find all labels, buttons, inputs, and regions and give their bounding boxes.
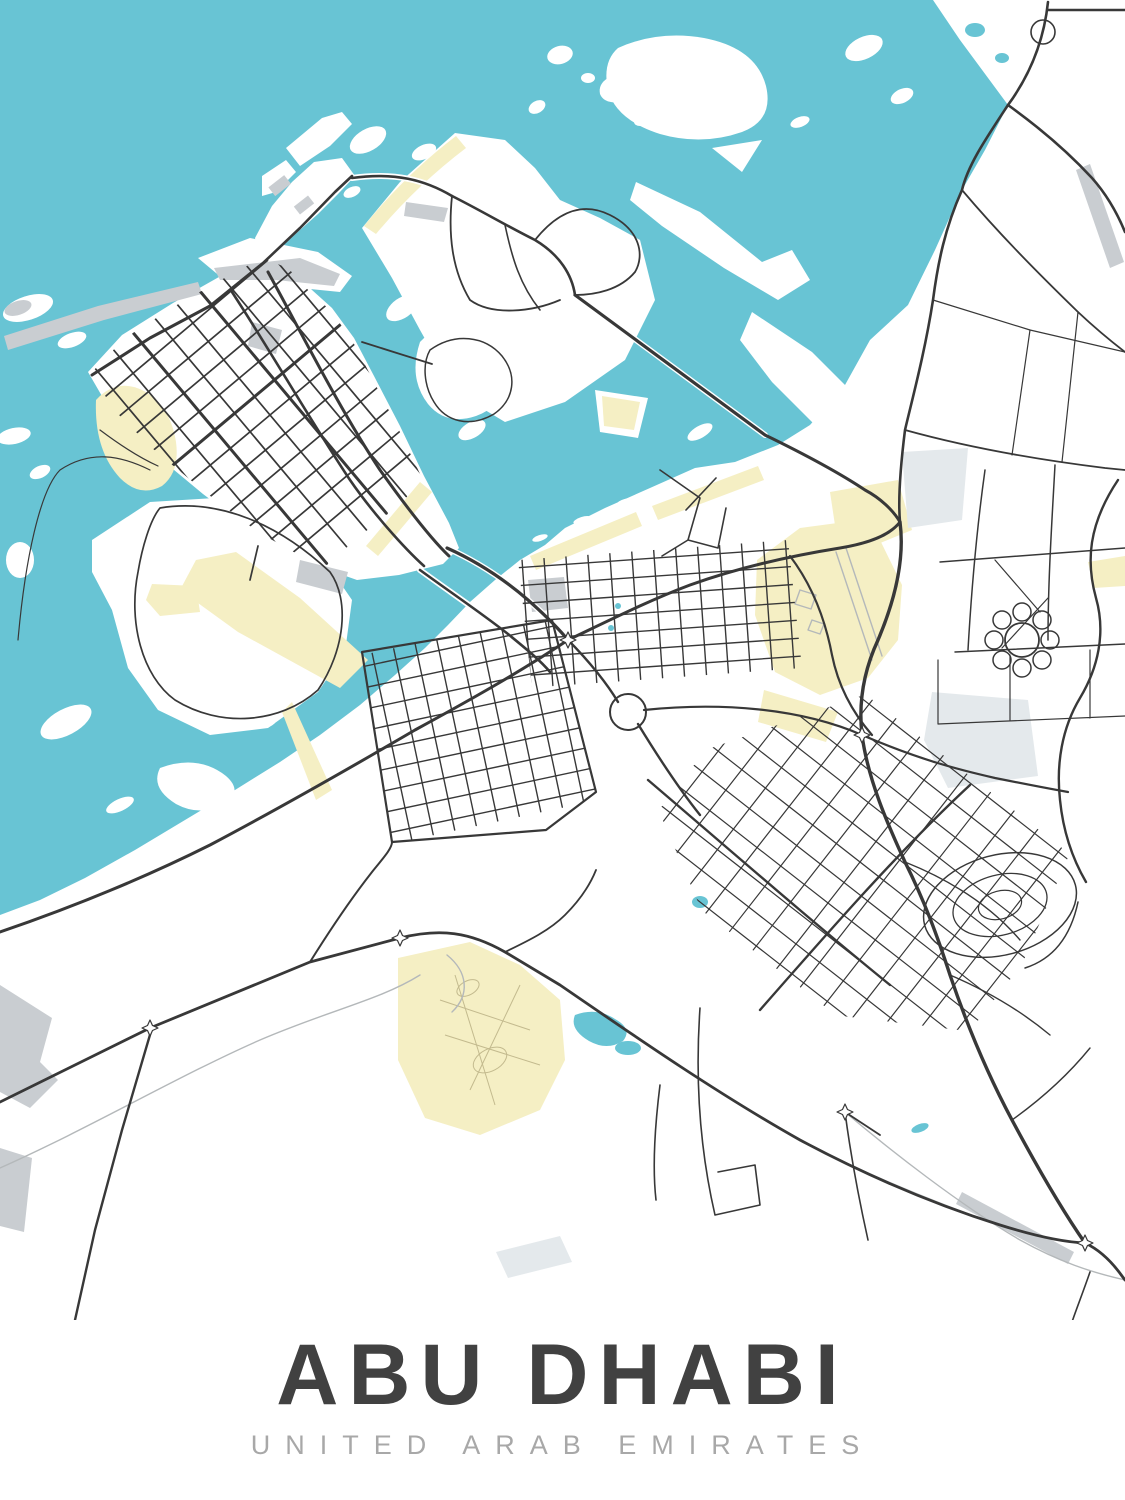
islet — [634, 118, 646, 126]
city-title: ABU DHABI — [0, 1332, 1125, 1418]
lagoon — [995, 53, 1009, 63]
city-subtitle: UNITED ARAB EMIRATES — [0, 1432, 1125, 1459]
islet — [581, 73, 595, 83]
city-map — [0, 0, 1125, 1320]
islet — [6, 542, 34, 578]
lake — [615, 1041, 641, 1055]
pond — [608, 625, 614, 631]
poster-title-block: ABU DHABI UNITED ARAB EMIRATES — [0, 1332, 1125, 1459]
pond — [615, 603, 621, 609]
pale-zone-east-coast — [902, 448, 968, 528]
map-poster: ABU DHABI UNITED ARAB EMIRATES — [0, 0, 1125, 1500]
lagoon — [965, 23, 985, 37]
map-canvas — [0, 0, 1125, 1320]
islet-park-small — [602, 396, 640, 430]
